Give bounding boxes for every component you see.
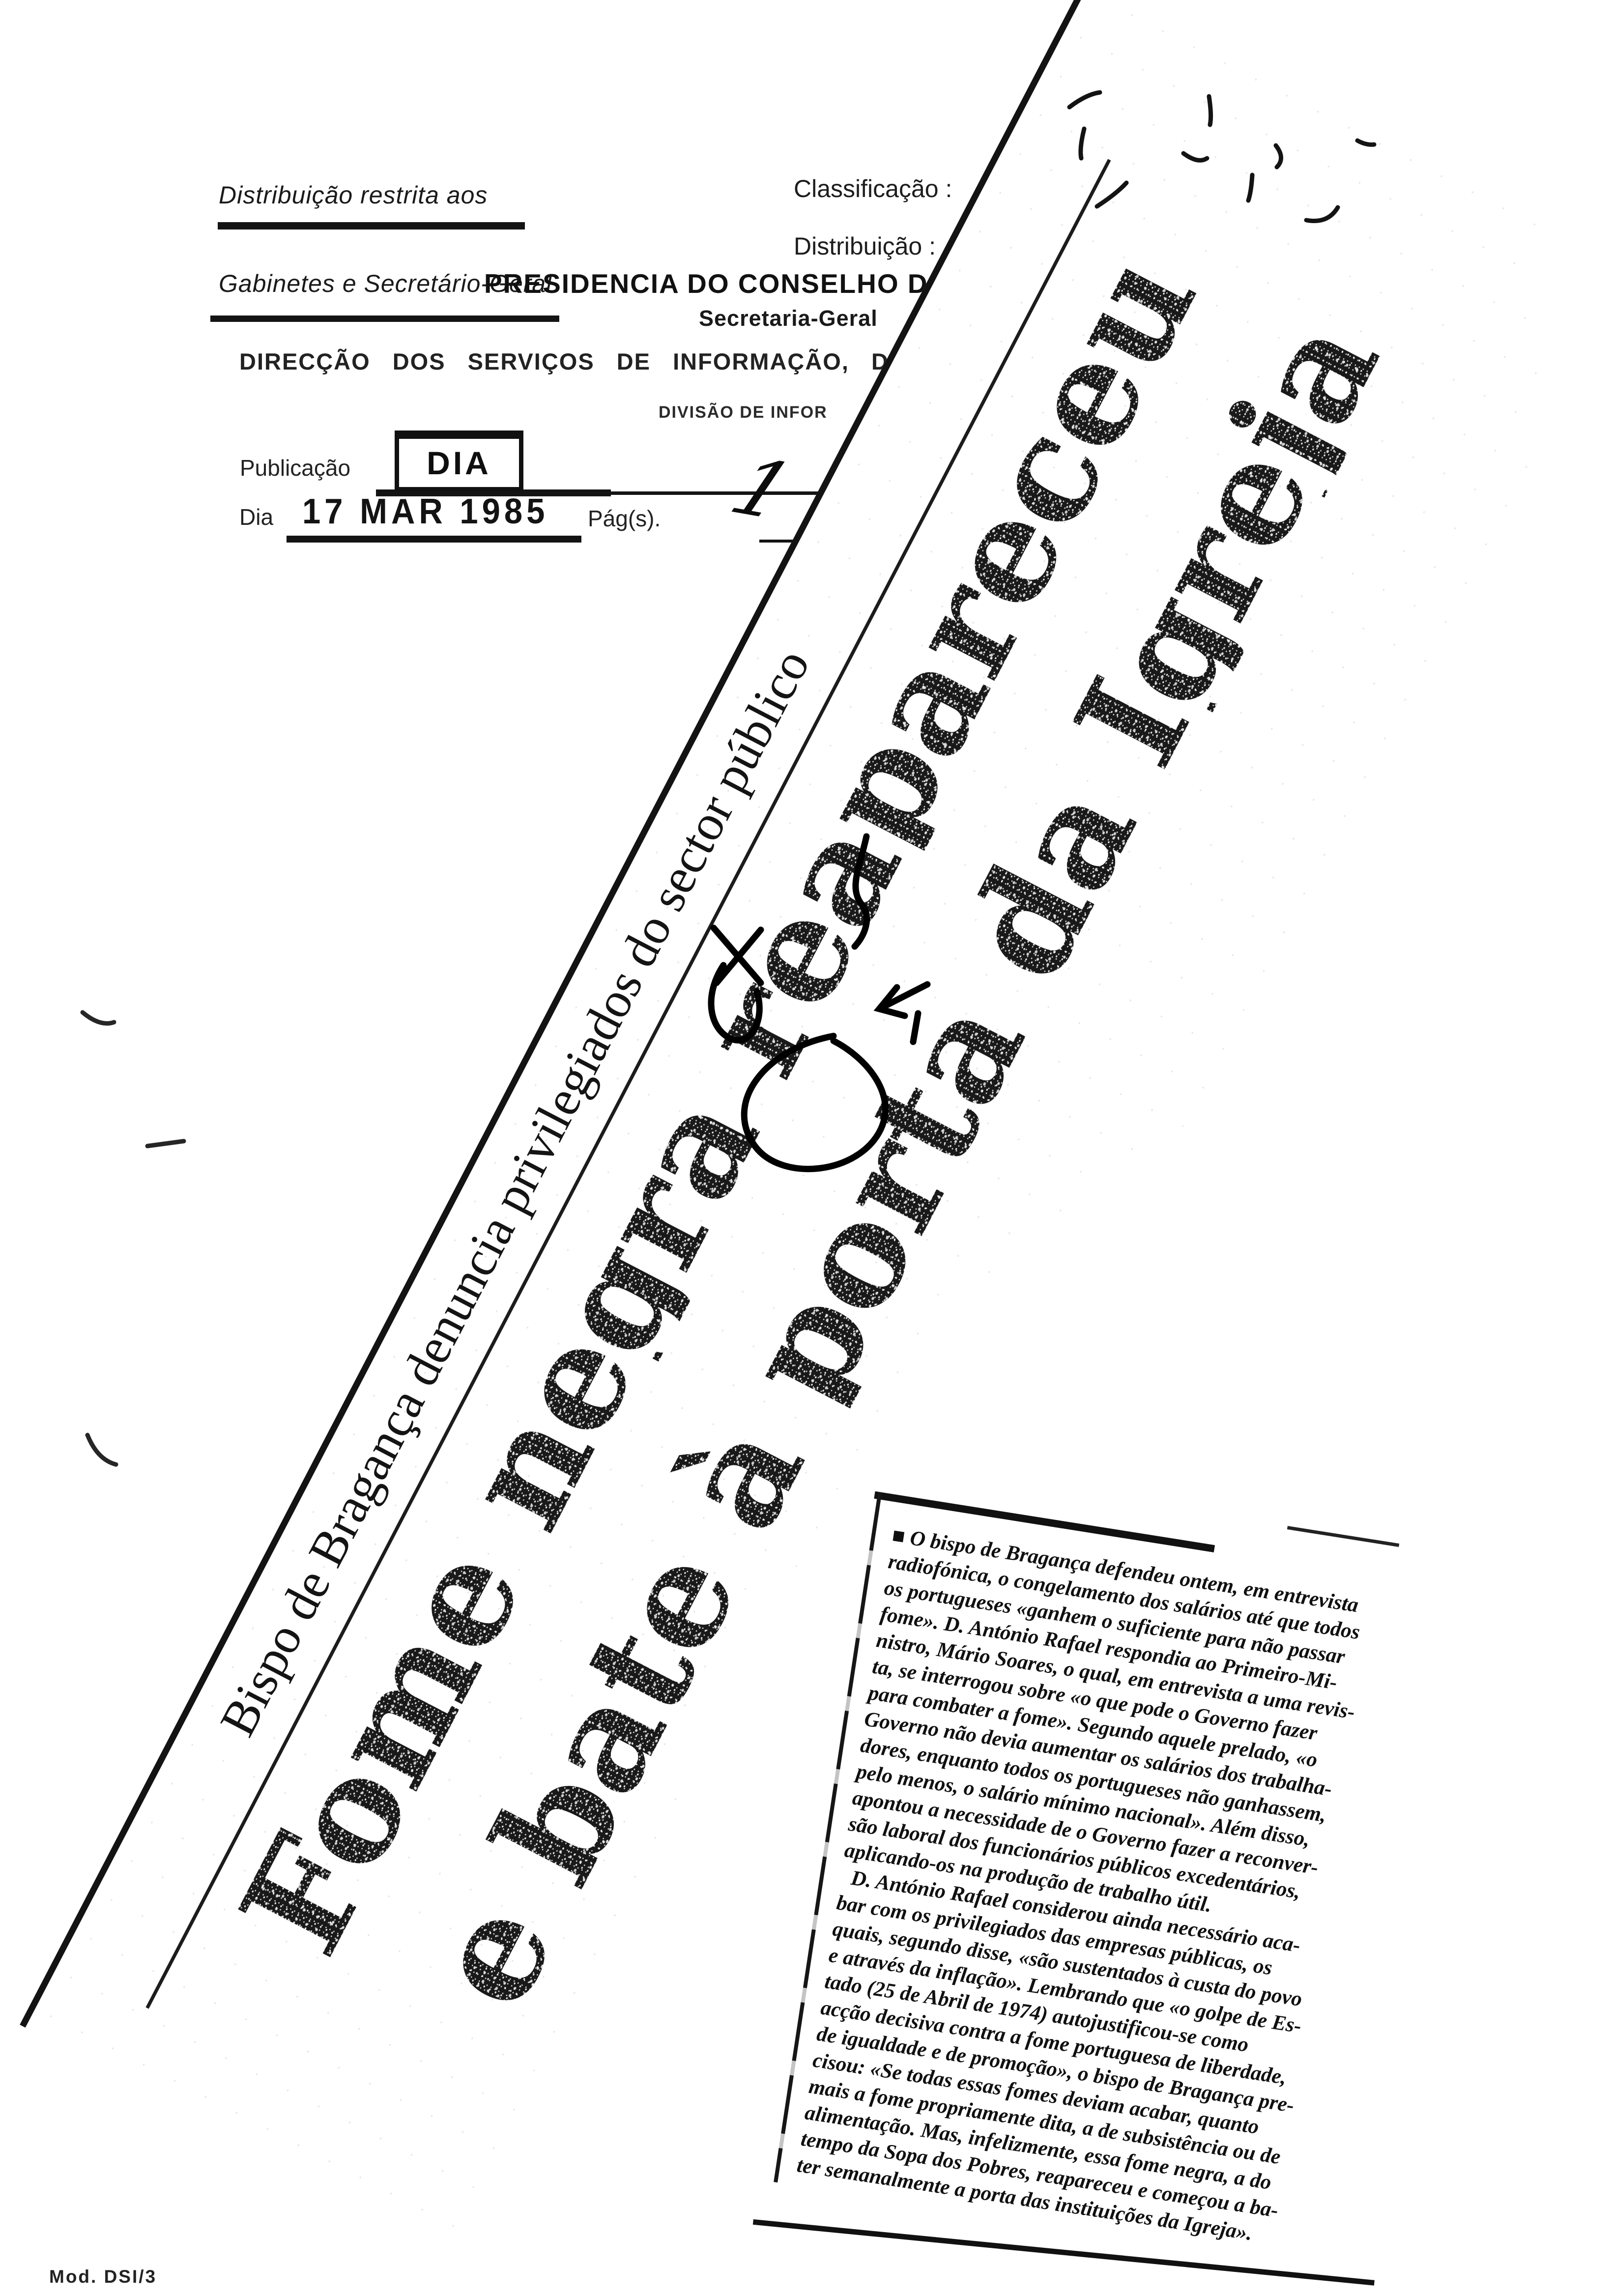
distribution-label: Distribuição : — [794, 232, 936, 260]
form-model-reference: Mod. DSI/3 — [49, 2267, 157, 2287]
org-direction: DIRECÇÃO DOS SERVIÇOS DE INFORMAÇÃO, DO — [239, 348, 908, 375]
date-underline — [287, 536, 581, 543]
day-label: Dia — [239, 504, 273, 530]
org-division: DIVISÃO DE INFOR — [659, 403, 828, 422]
article-body: ■ O bispo de Bragança defendeu ontem, em… — [795, 1522, 1442, 2261]
classification-label: Classificação : — [794, 174, 952, 203]
org-title: PRESIDENCIA DO CONSELHO D — [484, 268, 928, 299]
restricted-note-line1: Distribuição restrita aos — [219, 181, 488, 209]
org-subtitle: Secretaria-Geral — [699, 306, 878, 331]
restricted-note-underline2 — [210, 316, 559, 322]
publication-stamp-text: DIA — [427, 444, 491, 482]
article-text-block: ■ O bispo de Bragança defendeu ontem, em… — [769, 1487, 1457, 2296]
pages-value-handwritten: 1 — [719, 442, 806, 537]
publication-label: Publicação — [240, 455, 350, 481]
clipping-torn-edge-mark — [1287, 1526, 1399, 1547]
scanned-document-page: Distribuição restrita aos Gabinetes e Se… — [0, 0, 1612, 2296]
margin-marks-icon — [83, 1012, 184, 1464]
restricted-note-underline1 — [218, 222, 525, 230]
publication-stamp-box: DIA — [395, 430, 523, 491]
date-stamp: 17 MAR 1985 — [302, 491, 548, 532]
pages-label: Pág(s). — [588, 505, 661, 532]
